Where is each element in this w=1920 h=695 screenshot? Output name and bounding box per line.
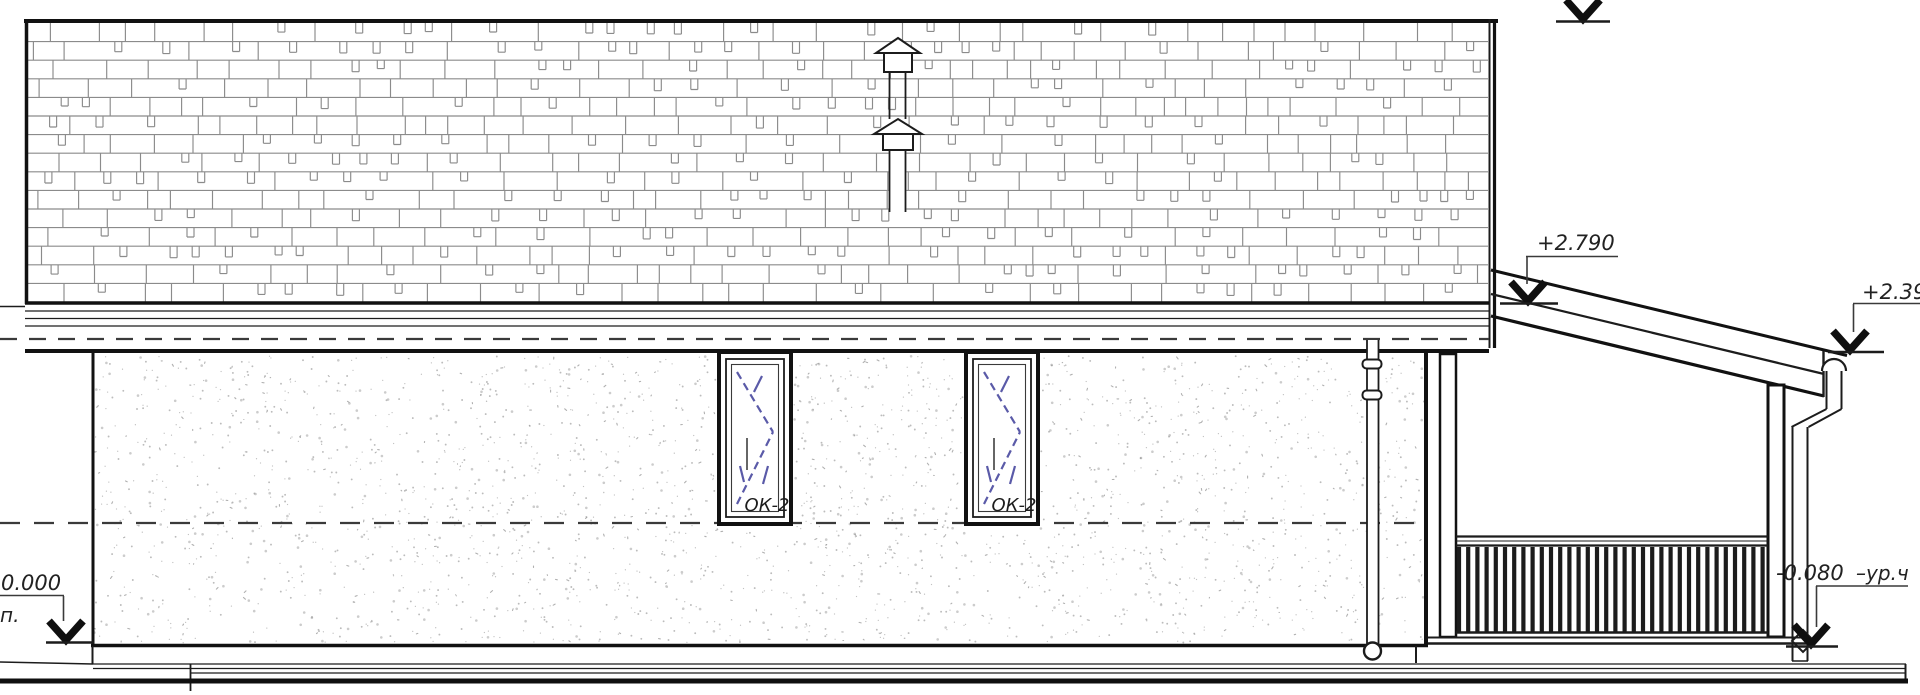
window-ok2-2: ОК-2 bbox=[966, 352, 1038, 524]
elevation-value: 0.000 bbox=[1, 571, 61, 595]
porch-railing bbox=[1456, 537, 1768, 633]
downspout-outlet bbox=[1364, 643, 1381, 660]
elevation-arrow-icon bbox=[1566, 0, 1600, 19]
elevation-marker-floor: 0.000 п. bbox=[0, 571, 94, 643]
downspout-pipe-body bbox=[1367, 340, 1379, 645]
window-ok2-1: ОК-2 bbox=[719, 352, 791, 524]
elevation-value: -0.080 bbox=[1776, 561, 1844, 585]
porch-floor bbox=[1416, 638, 1810, 664]
elevation-suffix: п. bbox=[0, 603, 19, 627]
elevation-arrow-icon bbox=[1511, 282, 1545, 301]
elevation-suffix: –ур.ч bbox=[1856, 561, 1909, 585]
vent-pipe-body bbox=[889, 150, 907, 212]
main-roof bbox=[24, 19, 1498, 348]
elevation-drawing-canvas: ОК-2 ОК-2 bbox=[0, 0, 1920, 695]
elevation-value: +2.39 bbox=[1862, 280, 1920, 304]
elevation-arrow-icon bbox=[1833, 331, 1867, 350]
hatch-path bbox=[1459, 547, 1763, 632]
downspout-elbow-left-line bbox=[1792, 409, 1827, 427]
window-label: ОК-2 bbox=[992, 495, 1037, 516]
vent-cap-body bbox=[883, 134, 913, 150]
downspout-collar-1 bbox=[1363, 360, 1382, 369]
main-roof-face bbox=[25, 20, 1495, 303]
porch-roof bbox=[1491, 270, 1847, 397]
porch-wall-post bbox=[1440, 354, 1456, 637]
eave-band bbox=[0, 303, 1489, 351]
elevation-marker-ridge bbox=[1556, 0, 1610, 22]
elevation-arrow-icon bbox=[49, 621, 83, 640]
elevation-marker-porch-low: +2.39 bbox=[1828, 280, 1920, 352]
window-label: ОК-2 bbox=[745, 495, 790, 516]
railing-balusters bbox=[1459, 547, 1763, 632]
elevation-marker-porch-high: +2.790 bbox=[1500, 231, 1618, 304]
porch-roof-mid-line bbox=[1491, 294, 1824, 374]
ground-and-pavement bbox=[0, 646, 1908, 691]
vent-cap-body bbox=[884, 53, 912, 72]
elevation-sheet: ОК-2 ОК-2 bbox=[0, 0, 1920, 695]
elevation-value: +2.790 bbox=[1537, 231, 1615, 255]
pavement-left-slope bbox=[0, 662, 93, 664]
porch-gutter-downspout bbox=[1792, 359, 1847, 661]
gutter-dome bbox=[1822, 359, 1846, 371]
porch-corner-post bbox=[1768, 385, 1784, 637]
front-wall bbox=[0, 353, 1428, 646]
downspout-elbow-right-line bbox=[1809, 409, 1842, 427]
gutter-drop-body bbox=[1826, 371, 1842, 409]
downspout-collar-2 bbox=[1363, 391, 1382, 400]
